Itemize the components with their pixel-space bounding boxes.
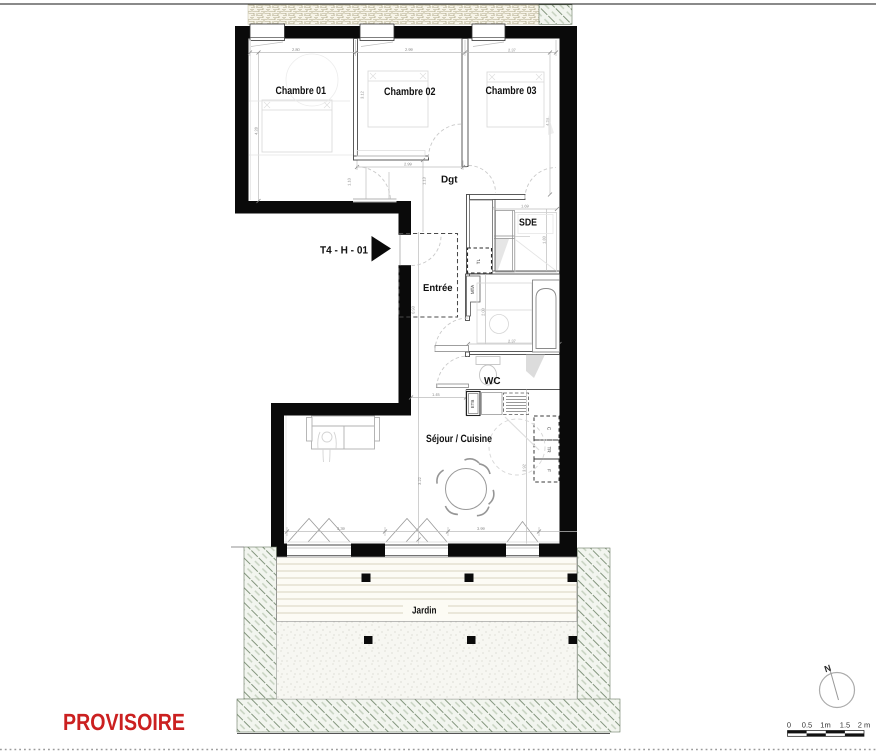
svg-text:3.92: 3.92	[522, 463, 527, 472]
svg-text:2.99: 2.99	[404, 162, 413, 167]
svg-text:0: 0	[787, 721, 791, 730]
svg-text:1m: 1m	[820, 721, 830, 730]
svg-text:1.69: 1.69	[521, 204, 530, 209]
svg-text:T4 - H - 01: T4 - H - 01	[320, 245, 368, 257]
svg-text:Chambre 01: Chambre 01	[276, 85, 327, 97]
svg-text:3.12: 3.12	[360, 90, 365, 99]
svg-text:3.99: 3.99	[477, 526, 486, 531]
svg-text:Chambre 03: Chambre 03	[486, 85, 537, 97]
svg-text:2.37: 2.37	[508, 48, 517, 53]
svg-text:ETB: ETB	[470, 400, 475, 409]
svg-text:2 m: 2 m	[858, 721, 871, 730]
svg-text:4.28: 4.28	[254, 126, 259, 135]
svg-text:2.03: 2.03	[481, 307, 486, 316]
svg-text:SDE: SDE	[519, 218, 537, 229]
svg-text:1.45: 1.45	[432, 392, 441, 397]
svg-text:MTA: MTA	[470, 284, 475, 294]
svg-text:WC: WC	[484, 376, 501, 387]
svg-text:TR: TR	[547, 446, 552, 453]
svg-text:3.22: 3.22	[417, 476, 422, 485]
svg-text:Entrée: Entrée	[423, 283, 453, 294]
svg-text:3.39: 3.39	[337, 526, 346, 531]
svg-text:2.80: 2.80	[292, 47, 301, 52]
svg-text:1.5: 1.5	[840, 721, 850, 730]
svg-text:1.83: 1.83	[542, 235, 547, 244]
svg-text:Dgt: Dgt	[441, 175, 458, 186]
svg-text:2.99: 2.99	[405, 47, 414, 52]
svg-text:0.93: 0.93	[411, 305, 416, 314]
svg-text:1.13: 1.13	[422, 176, 427, 185]
svg-text:1.10: 1.10	[347, 177, 352, 186]
svg-text:0.5: 0.5	[802, 721, 812, 730]
svg-text:Jardin: Jardin	[412, 606, 437, 617]
svg-text:Chambre 02: Chambre 02	[384, 86, 436, 98]
svg-text:TL: TL	[476, 258, 481, 264]
svg-text:Séjour / Cuisine: Séjour / Cuisine	[426, 433, 492, 445]
svg-text:PROVISOIRE: PROVISOIRE	[63, 709, 185, 735]
svg-text:F: F	[547, 469, 552, 472]
